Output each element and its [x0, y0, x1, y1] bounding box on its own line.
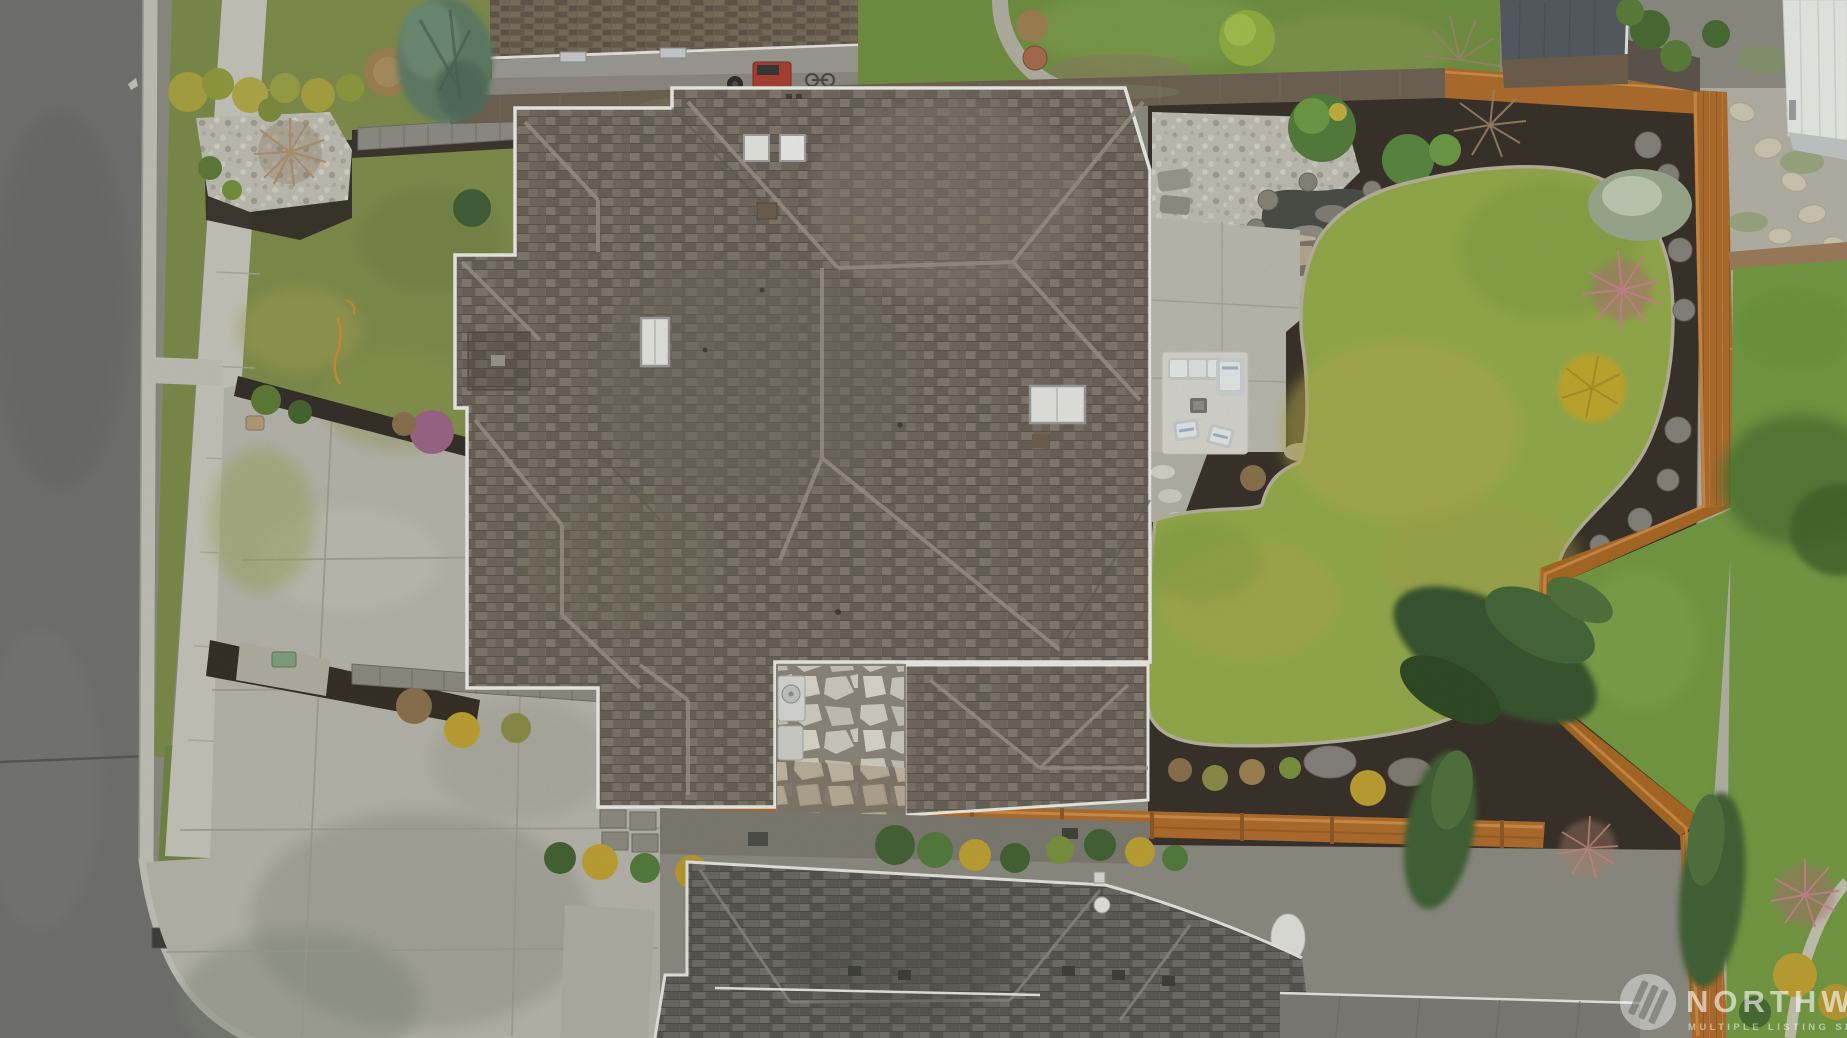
aerial-photo-canvas: NORTHWEST MULTIPLE LISTING SERVICE: [0, 0, 1847, 1038]
watermark-brand: NORTHWEST: [1686, 984, 1847, 1019]
photo-grain-overlay: [0, 0, 1847, 1038]
watermark-tagline: MULTIPLE LISTING SERVICE: [1688, 1022, 1847, 1033]
aerial-photo: NORTHWEST MULTIPLE LISTING SERVICE: [0, 0, 1847, 1038]
nwmls-triple-slash-icon: [1620, 974, 1676, 1030]
